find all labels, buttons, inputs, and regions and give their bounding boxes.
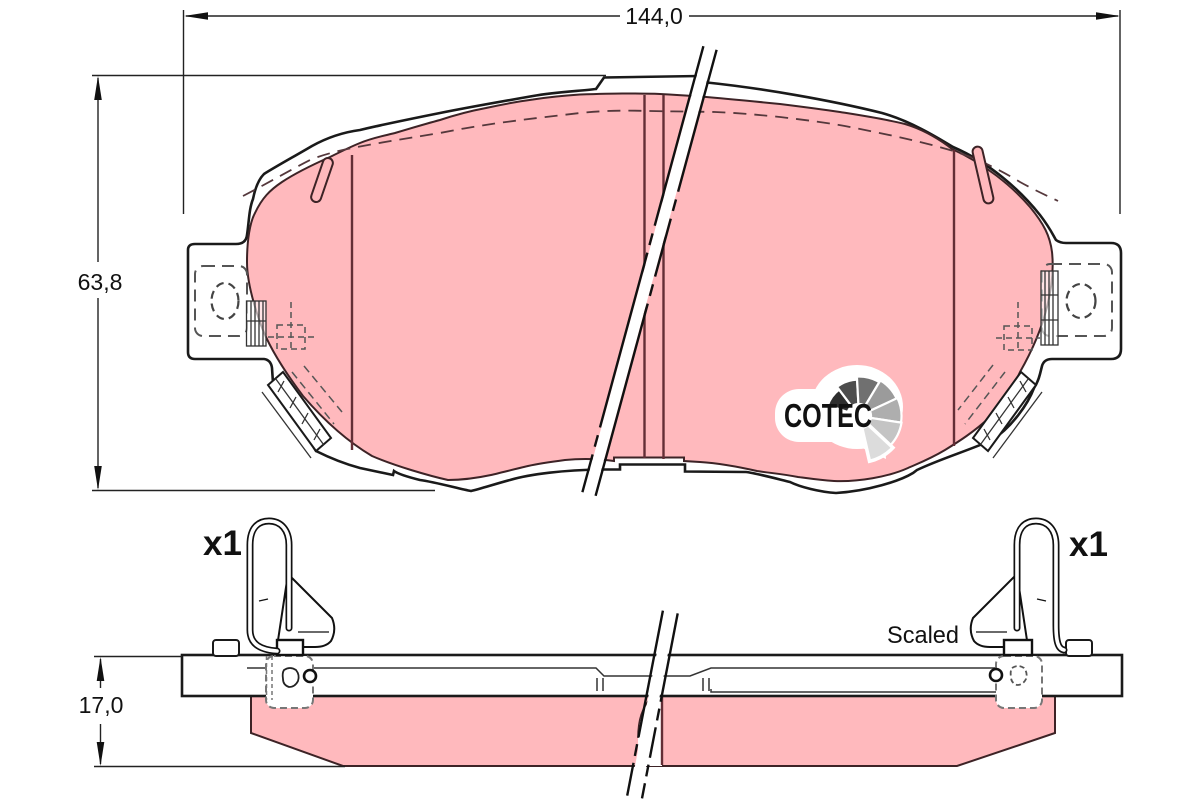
svg-text:144,0: 144,0 bbox=[625, 3, 683, 29]
svg-text:x1: x1 bbox=[203, 524, 242, 563]
svg-text:17,0: 17,0 bbox=[79, 692, 124, 718]
svg-text:Scaled: Scaled bbox=[887, 622, 959, 649]
svg-text:x1: x1 bbox=[1069, 525, 1108, 564]
svg-text:COTEC: COTEC bbox=[784, 397, 872, 434]
svg-text:63,8: 63,8 bbox=[78, 269, 123, 295]
